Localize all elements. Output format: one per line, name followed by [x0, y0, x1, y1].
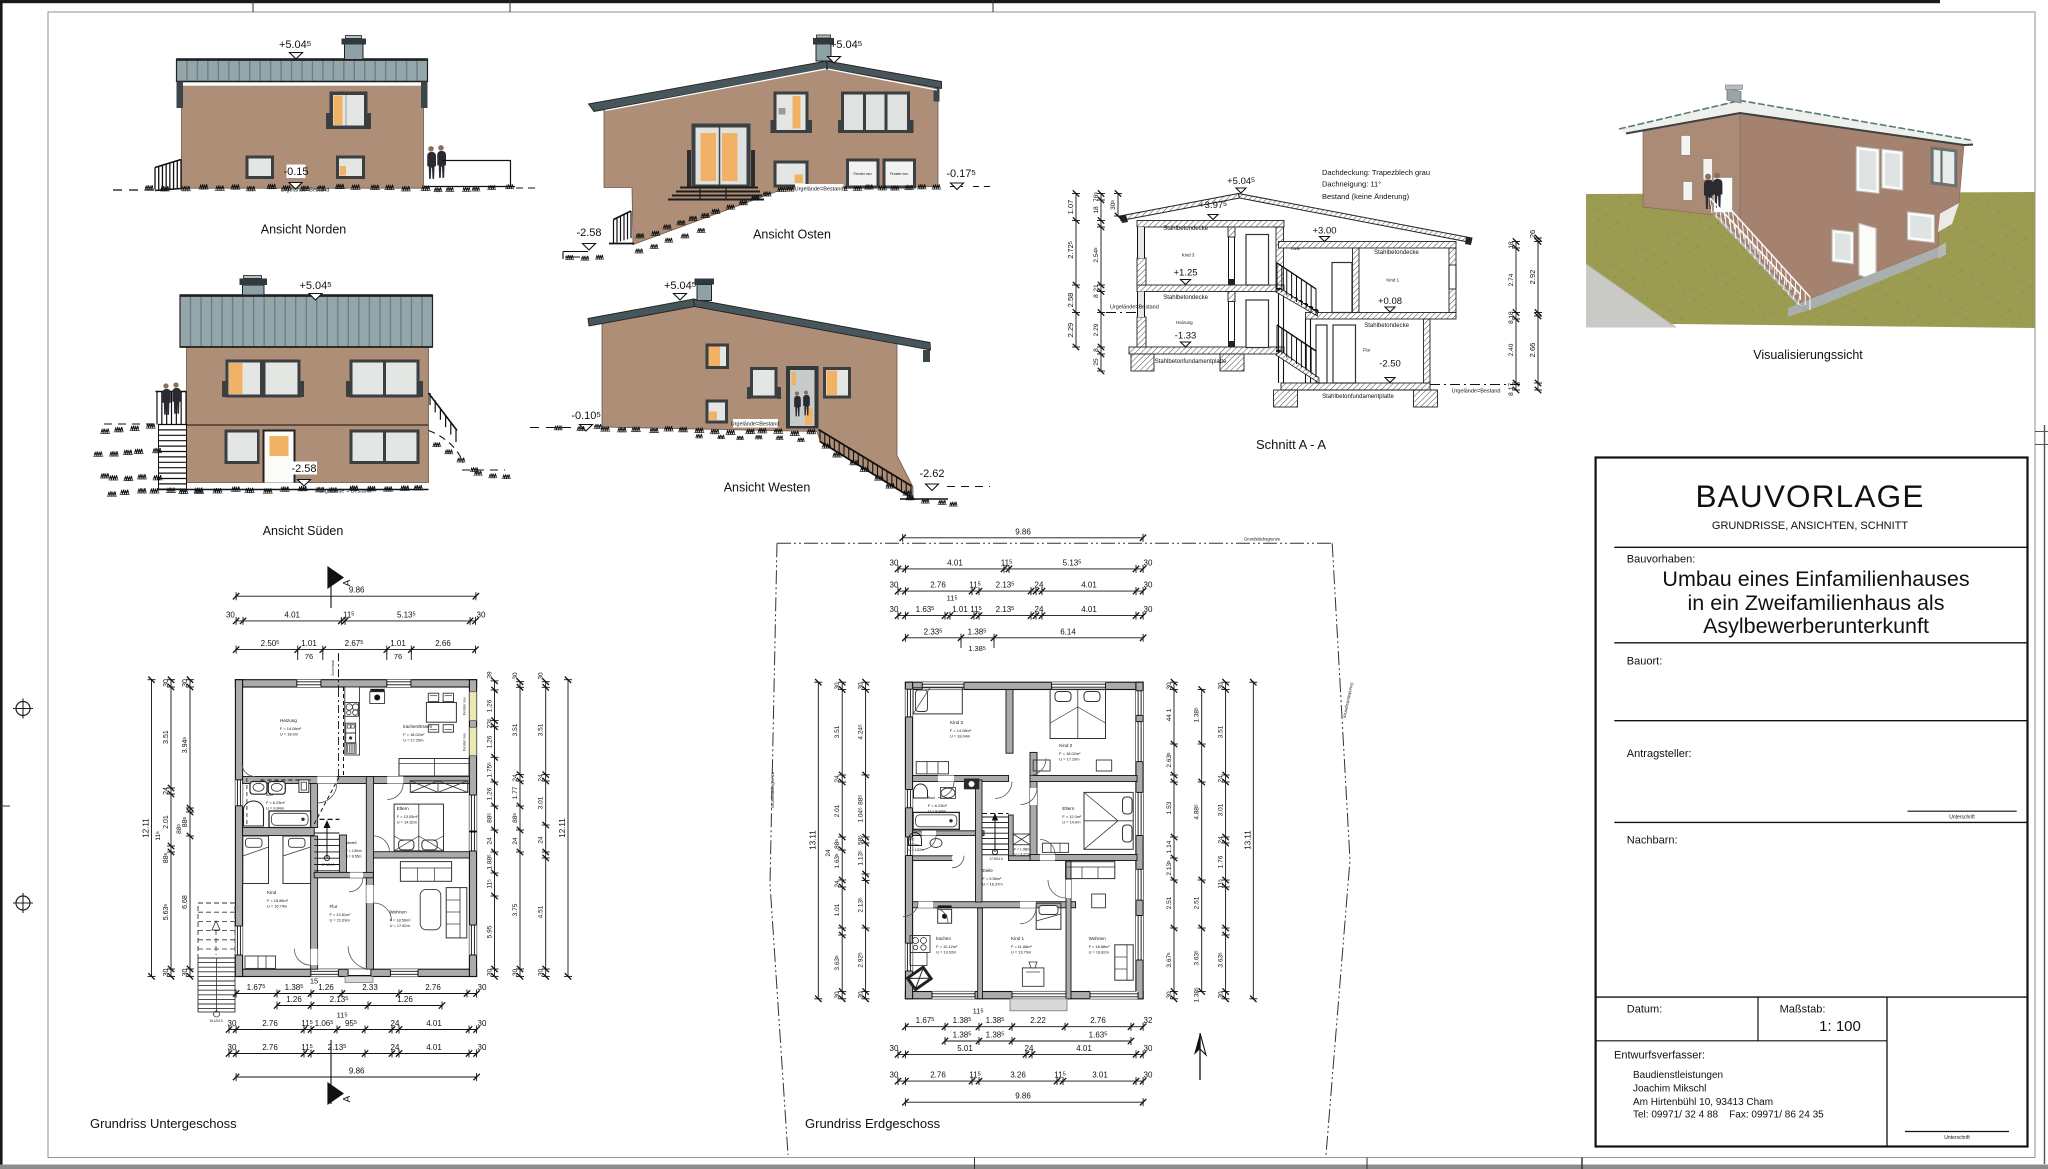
svg-text:30: 30: [487, 969, 494, 977]
svg-text:Diele: Diele: [1291, 246, 1301, 251]
svg-text:30: 30: [858, 991, 865, 999]
svg-text:F = 13.05m²: F = 13.05m²: [397, 814, 419, 819]
svg-text:30: 30: [890, 1044, 899, 1053]
svg-text:2.76: 2.76: [930, 1071, 946, 1080]
svg-text:30: 30: [834, 991, 841, 999]
svg-text:30: 30: [1144, 1044, 1153, 1053]
svg-text:3.51: 3.51: [1218, 725, 1225, 738]
svg-text:13.11: 13.11: [1243, 830, 1252, 850]
svg-text:U = 21.69m: U = 21.69m: [330, 918, 350, 923]
svg-text:2.92: 2.92: [1528, 270, 1537, 285]
svg-text:2.76: 2.76: [425, 983, 441, 992]
svg-text:18: 18: [1093, 206, 1100, 214]
svg-text:+5.045: +5.045: [830, 39, 862, 51]
svg-text:Asylbewerberunterkunft: Asylbewerberunterkunft: [1703, 614, 1929, 638]
svg-text:1.26: 1.26: [487, 699, 494, 712]
svg-text:24: 24: [512, 837, 519, 845]
svg-text:30: 30: [478, 1043, 487, 1052]
svg-text:Antragsteller:: Antragsteller:: [1627, 748, 1692, 760]
svg-text:Eltern: Eltern: [397, 806, 409, 811]
svg-text:24: 24: [1035, 581, 1044, 590]
svg-text:1.26: 1.26: [318, 983, 334, 992]
svg-text:-2.58: -2.58: [576, 227, 601, 239]
svg-text:+3.975: +3.975: [1199, 200, 1227, 211]
svg-text:4.51: 4.51: [538, 905, 545, 918]
svg-text:5.01: 5.01: [957, 1044, 973, 1053]
svg-text:24: 24: [487, 837, 494, 845]
svg-text:Diele: Diele: [982, 868, 993, 873]
svg-text:Bad: Bad: [928, 796, 935, 800]
svg-text:24: 24: [834, 880, 841, 888]
svg-text:U = 16.37m: U = 16.37m: [982, 882, 1002, 887]
svg-text:2.76: 2.76: [930, 581, 946, 590]
svg-text:24: 24: [834, 775, 841, 783]
svg-text:F = 18.50m²: F = 18.50m²: [390, 918, 412, 923]
svg-text:30: 30: [1144, 558, 1153, 567]
svg-text:F = 1.80m²: F = 1.80m²: [346, 849, 363, 853]
svg-text:Kind: Kind: [267, 890, 277, 895]
svg-text:17.9/24.0: 17.9/24.0: [989, 857, 1003, 861]
svg-text:+5.045: +5.045: [279, 39, 311, 51]
svg-text:30: 30: [512, 672, 519, 680]
svg-text:Grundriss Untergeschoss: Grundriss Untergeschoss: [90, 1116, 237, 1131]
svg-text:+1.25: +1.25: [1173, 268, 1197, 279]
svg-text:F = 14.08m²: F = 14.08m²: [280, 726, 302, 731]
svg-text:3.51: 3.51: [538, 723, 545, 736]
svg-text:76: 76: [394, 652, 402, 661]
svg-text:30: 30: [1166, 991, 1173, 999]
svg-text:Kind 3: Kind 3: [1182, 253, 1195, 258]
svg-text:Stahlbetonfundamentplatte: Stahlbetonfundamentplatte: [1322, 394, 1394, 400]
svg-text:Ansicht Norden: Ansicht Norden: [261, 223, 347, 237]
svg-text:1.01: 1.01: [834, 903, 841, 916]
svg-text:+5.045: +5.045: [1227, 176, 1255, 187]
svg-text:2.76: 2.76: [262, 1019, 278, 1028]
svg-text:-2.58: -2.58: [291, 463, 316, 475]
svg-text:U = 9.84m: U = 9.84m: [928, 809, 946, 814]
svg-text:F = 6.23m²: F = 6.23m²: [928, 803, 948, 808]
svg-text:2.01: 2.01: [163, 815, 170, 829]
svg-text:F = 6.23m²: F = 6.23m²: [266, 800, 286, 805]
svg-text:Urgelände=Bestand: Urgelände=Bestand: [1452, 389, 1501, 395]
svg-text:U = 4.27m: U = 4.27m: [1014, 853, 1030, 857]
svg-text:30: 30: [890, 605, 899, 614]
svg-text:8: 8: [1093, 348, 1100, 352]
svg-text:21: 21: [1093, 284, 1100, 292]
svg-text:1: 100: 1: 100: [1819, 1018, 1861, 1035]
svg-text:12.11: 12.11: [558, 818, 567, 838]
svg-text:Unterschrift: Unterschrift: [1949, 815, 1975, 821]
svg-text:Urgelände=Bestand: Urgelände=Bestand: [1110, 305, 1159, 311]
svg-text:30: 30: [228, 1019, 237, 1028]
svg-text:6.14: 6.14: [1060, 627, 1076, 636]
svg-text:U = 17.29m: U = 17.29m: [1059, 757, 1079, 762]
svg-text:Wohnen: Wohnen: [1089, 936, 1106, 941]
svg-text:1.01: 1.01: [952, 605, 968, 614]
svg-text:Kind 1: Kind 1: [1386, 278, 1399, 283]
svg-text:F = 13.81m²: F = 13.81m²: [330, 912, 352, 917]
svg-text:24: 24: [825, 849, 832, 857]
svg-text:9.86: 9.86: [1015, 1092, 1031, 1101]
svg-text:1.53: 1.53: [1166, 801, 1173, 814]
svg-text:1.26: 1.26: [487, 735, 494, 748]
svg-text:1.01: 1.01: [390, 639, 406, 648]
svg-text:2.66: 2.66: [1528, 343, 1537, 358]
svg-text:Stahlbetondecke: Stahlbetondecke: [1364, 323, 1409, 329]
svg-text:24: 24: [538, 836, 545, 844]
svg-text:Kind 1: Kind 1: [1011, 936, 1024, 941]
svg-text:F = 18.02m²: F = 18.02m²: [403, 732, 425, 737]
svg-text:17.9/24.0: 17.9/24.0: [321, 863, 335, 867]
svg-text:F = 1.08m²: F = 1.08m²: [1014, 848, 1031, 852]
svg-text:Flur: Flur: [1363, 348, 1371, 353]
svg-text:Bad: Bad: [266, 793, 273, 797]
svg-text:2.74: 2.74: [1508, 273, 1515, 286]
svg-text:26: 26: [1528, 230, 1537, 238]
svg-text:Urgelände = Bestand: Urgelände = Bestand: [319, 489, 371, 495]
svg-text:1.01: 1.01: [301, 639, 317, 648]
svg-text:1.26: 1.26: [487, 787, 494, 800]
svg-text:Bestand (keine Änderung): Bestand (keine Änderung): [1322, 192, 1410, 201]
svg-text:2.58: 2.58: [1066, 293, 1075, 308]
svg-text:30: 30: [182, 679, 189, 687]
svg-text:+0.08: +0.08: [1378, 296, 1402, 307]
svg-text:6.68: 6.68: [182, 895, 189, 909]
svg-text:30: 30: [228, 1043, 237, 1052]
svg-text:1.14: 1.14: [1166, 840, 1173, 853]
svg-text:+3.00: +3.00: [1312, 226, 1336, 237]
svg-text:U = 18.0m: U = 18.0m: [280, 732, 298, 737]
svg-text:24: 24: [391, 1043, 400, 1052]
svg-text:30: 30: [890, 558, 899, 567]
svg-text:Nachbarn:: Nachbarn:: [1627, 835, 1678, 847]
svg-text:2.29: 2.29: [1066, 323, 1075, 338]
svg-text:F = 10.12m²: F = 10.12m²: [936, 944, 958, 949]
svg-text:1.77: 1.77: [512, 786, 519, 799]
svg-text:30: 30: [858, 682, 865, 690]
svg-text:25: 25: [1093, 358, 1100, 366]
svg-text:-2.62: -2.62: [919, 468, 944, 480]
svg-text:30: 30: [890, 1071, 899, 1080]
svg-text:U = 17.29m: U = 17.29m: [403, 738, 423, 743]
svg-text:8: 8: [1508, 392, 1515, 396]
svg-text:Grundstücksgrenze: Grundstücksgrenze: [770, 771, 775, 808]
svg-text:U = 17.82m: U = 17.82m: [390, 923, 410, 928]
svg-text:4.01: 4.01: [284, 610, 300, 619]
svg-text:U = 13.02m: U = 13.02m: [936, 950, 956, 955]
svg-text:39: 39: [487, 671, 494, 679]
svg-text:30: 30: [163, 679, 170, 687]
svg-text:3.75: 3.75: [512, 903, 519, 916]
svg-text:1.26: 1.26: [286, 995, 302, 1004]
svg-text:Maßstab:: Maßstab:: [1780, 1004, 1826, 1016]
svg-text:F = 18.02m²: F = 18.02m²: [1059, 751, 1081, 756]
svg-text:1.26: 1.26: [397, 995, 413, 1004]
svg-text:2.76: 2.76: [1090, 1016, 1106, 1025]
svg-text:Urgelände=Bestand: Urgelände=Bestand: [795, 187, 844, 193]
svg-text:U = 8.65m: U = 8.65m: [346, 855, 362, 859]
svg-text:24: 24: [163, 787, 170, 795]
svg-text:-1.33: -1.33: [1175, 331, 1197, 342]
svg-text:Wohnen: Wohnen: [390, 910, 407, 915]
svg-text:15: 15: [310, 977, 318, 986]
svg-text:BAUVORLAGE: BAUVORLAGE: [1695, 478, 1924, 514]
svg-text:24: 24: [1218, 836, 1225, 844]
svg-text:3.01: 3.01: [1218, 803, 1225, 816]
svg-text:24: 24: [538, 774, 545, 782]
svg-text:U = 16.79m: U = 16.79m: [267, 904, 287, 909]
svg-text:30: 30: [834, 682, 841, 690]
svg-text:Fenster neu: Fenster neu: [890, 172, 908, 176]
svg-text:12.11: 12.11: [142, 818, 151, 838]
svg-text:30: 30: [1218, 682, 1225, 690]
svg-text:3.01: 3.01: [1092, 1071, 1108, 1080]
svg-text:+5.045: +5.045: [299, 280, 331, 292]
svg-text:2.22: 2.22: [1030, 1016, 1046, 1025]
svg-text:-2.50: -2.50: [1379, 359, 1401, 370]
svg-text:30: 30: [163, 969, 170, 977]
svg-text:4.01: 4.01: [1076, 1044, 1092, 1053]
svg-text:30: 30: [1166, 682, 1173, 690]
svg-text:8: 8: [1508, 320, 1515, 324]
svg-text:F = 11.88m²: F = 11.88m²: [1011, 944, 1032, 949]
svg-text:4.01: 4.01: [426, 1043, 442, 1052]
svg-text:1.63m²: 1.63m²: [909, 843, 920, 847]
svg-text:4.01: 4.01: [1081, 581, 1097, 590]
svg-text:30: 30: [1144, 1071, 1153, 1080]
svg-text:30: 30: [478, 1019, 487, 1028]
svg-text:17: 17: [1508, 383, 1515, 391]
svg-text:Stahlbetonfundamentplatte: Stahlbetonfundamentplatte: [1155, 359, 1227, 365]
svg-text:U = 19.82m: U = 19.82m: [1089, 950, 1109, 955]
svg-text:76: 76: [305, 652, 313, 661]
svg-text:9.86: 9.86: [349, 1067, 365, 1076]
svg-text:+5.045: +5.045: [664, 280, 696, 292]
svg-text:Stahlbetondecke: Stahlbetondecke: [1163, 226, 1208, 232]
svg-text:Joachim Mikschl: Joachim Mikschl: [1633, 1084, 1706, 1095]
svg-text:-0.105: -0.105: [571, 410, 600, 422]
svg-text:30: 30: [512, 969, 519, 977]
svg-text:Zum Kanal: Zum Kanal: [331, 660, 335, 676]
svg-text:13.11: 13.11: [808, 830, 817, 850]
svg-text:18: 18: [1508, 311, 1515, 319]
svg-text:Dachdeckung: Trapezblech grau: Dachdeckung: Trapezblech grau: [1322, 168, 1430, 177]
svg-text:U = 14.0m: U = 14.0m: [1062, 820, 1080, 825]
svg-text:3.26: 3.26: [1010, 1071, 1026, 1080]
svg-text:-0.175: -0.175: [946, 168, 975, 180]
svg-text:Dachneigung: 11°: Dachneigung: 11°: [1322, 180, 1381, 189]
svg-text:U = 18.04m: U = 18.04m: [950, 734, 970, 739]
svg-text:Baudienstleistungen: Baudienstleistungen: [1633, 1070, 1723, 1081]
svg-text:2.40: 2.40: [1508, 343, 1515, 356]
svg-text:Visualisierungssicht: Visualisierungssicht: [1753, 348, 1863, 362]
svg-text:Ansicht Süden: Ansicht Süden: [263, 524, 344, 538]
svg-text:U = 4.82m: U = 4.82m: [909, 848, 925, 852]
svg-text:3.51: 3.51: [834, 725, 841, 738]
svg-text:Fenster neu: Fenster neu: [463, 697, 467, 715]
svg-text:1.07: 1.07: [1066, 200, 1075, 215]
svg-text:9.86: 9.86: [349, 586, 365, 595]
svg-text:9.86: 9.86: [1015, 527, 1031, 536]
svg-text:30: 30: [1218, 991, 1225, 999]
svg-text:Schnitt A - A: Schnitt A - A: [1256, 437, 1326, 452]
svg-text:24: 24: [1035, 605, 1044, 614]
svg-text:8: 8: [1093, 294, 1100, 298]
svg-text:F = 12.0m²: F = 12.0m²: [1062, 814, 1082, 819]
svg-text:16.1/04.0: 16.1/04.0: [209, 1019, 223, 1023]
svg-text:Grundriss Erdgeschoss: Grundriss Erdgeschoss: [805, 1116, 941, 1131]
svg-text:Stahlbetondecke: Stahlbetondecke: [1374, 250, 1419, 256]
svg-text:30: 30: [538, 672, 545, 680]
svg-text:Fenster neu: Fenster neu: [463, 733, 467, 751]
svg-text:24: 24: [512, 774, 519, 782]
svg-text:30: 30: [182, 969, 189, 977]
svg-text:30: 30: [477, 610, 486, 619]
svg-text:Bauort:: Bauort:: [1627, 656, 1662, 668]
svg-text:U = 13.79m: U = 13.79m: [1011, 950, 1031, 955]
svg-text:24: 24: [391, 1019, 400, 1028]
svg-text:2.29: 2.29: [1093, 323, 1100, 336]
svg-text:A: A: [342, 1095, 353, 1102]
svg-text:Eltern: Eltern: [1062, 806, 1074, 811]
svg-text:Bauvorhaben:: Bauvorhaben:: [1627, 554, 1696, 566]
svg-text:-0.15: -0.15: [283, 166, 308, 178]
svg-text:30: 30: [538, 969, 545, 977]
svg-text:Datum:: Datum:: [1627, 1004, 1662, 1016]
svg-text:1.76: 1.76: [1218, 855, 1225, 868]
svg-text:32: 32: [1144, 1016, 1153, 1025]
svg-text:4.01: 4.01: [947, 558, 963, 567]
svg-text:18: 18: [1508, 241, 1515, 249]
svg-text:U = 9.84m: U = 9.84m: [266, 806, 284, 811]
svg-text:küchen: küchen: [936, 936, 951, 941]
svg-text:2.51: 2.51: [1194, 896, 1201, 909]
svg-text:3.01: 3.01: [538, 796, 545, 809]
svg-text:F = 18.88m²: F = 18.88m²: [267, 898, 289, 903]
svg-text:Am Hirtenbühl 10, 93413 Cham: Am Hirtenbühl 10, 93413 Cham: [1633, 1097, 1773, 1108]
svg-text:GRUNDRISSE, ANSICHTEN, SCHNITT: GRUNDRISSE, ANSICHTEN, SCHNITT: [1712, 520, 1908, 532]
svg-text:Grundstücksgrenze: Grundstücksgrenze: [1244, 537, 1281, 542]
svg-text:Urgelände=Bestand: Urgelände=Bestand: [281, 188, 330, 194]
svg-text:2.66: 2.66: [435, 639, 451, 648]
svg-text:Umbau eines Einfamilienhauses: Umbau eines Einfamilienhauses: [1662, 567, 1969, 591]
svg-text:Abstell: Abstell: [346, 841, 357, 845]
svg-text:4.01: 4.01: [426, 1019, 442, 1028]
svg-text:Flur: Flur: [330, 904, 338, 909]
svg-text:2.33: 2.33: [362, 983, 378, 992]
svg-text:Heizung: Heizung: [280, 718, 297, 723]
svg-text:Unterschrift: Unterschrift: [1944, 1135, 1970, 1141]
svg-text:F = 9.56m²: F = 9.56m²: [982, 876, 1002, 881]
svg-text:3.51: 3.51: [163, 730, 170, 744]
svg-text:2.76: 2.76: [262, 1043, 278, 1052]
svg-text:Stahlbetondecke: Stahlbetondecke: [1163, 295, 1208, 301]
svg-text:F = 18.88m²: F = 18.88m²: [1089, 944, 1111, 949]
svg-text:Tel: 09971/ 32 4 88 Fax: 09: Tel: 09971/ 32 4 88 Fax: 09971/ 86 24 35: [1633, 1110, 1824, 1121]
svg-text:2.01: 2.01: [834, 804, 841, 817]
svg-text:24: 24: [1218, 775, 1225, 783]
svg-text:24: 24: [1025, 1044, 1034, 1053]
svg-text:Kind 2: Kind 2: [1059, 743, 1072, 748]
svg-text:Kind 3: Kind 3: [950, 720, 963, 725]
svg-text:F = 14.08m²: F = 14.08m²: [950, 728, 972, 733]
svg-text:Heizung: Heizung: [1176, 320, 1193, 325]
svg-text:Ansicht Osten: Ansicht Osten: [753, 228, 831, 242]
svg-text:30: 30: [226, 610, 235, 619]
svg-text:5.95: 5.95: [487, 925, 494, 938]
svg-text:WC: WC: [909, 838, 915, 842]
svg-text:in ein Zweifamilienhaus als: in ein Zweifamilienhaus als: [1688, 591, 1945, 615]
svg-text:2.51: 2.51: [1166, 896, 1173, 909]
svg-text:küchen/Essen: küchen/Essen: [403, 724, 432, 729]
svg-text:30: 30: [1144, 581, 1153, 590]
svg-text:Fenster neu: Fenster neu: [853, 172, 871, 176]
svg-text:30: 30: [1144, 605, 1153, 614]
svg-text:3.51: 3.51: [512, 723, 519, 736]
svg-text:U = 14.82m: U = 14.82m: [397, 820, 417, 825]
svg-text:Ansicht Westen: Ansicht Westen: [724, 481, 811, 495]
svg-text:30: 30: [890, 581, 899, 590]
svg-text:Urgelände=Bestand: Urgelände=Bestand: [731, 422, 780, 428]
svg-text:30: 30: [478, 983, 487, 992]
svg-text:4.01: 4.01: [1081, 605, 1097, 614]
svg-text:44 1: 44 1: [1166, 708, 1173, 721]
svg-text:Entwurfsverfasser:: Entwurfsverfasser:: [1614, 1050, 1705, 1062]
